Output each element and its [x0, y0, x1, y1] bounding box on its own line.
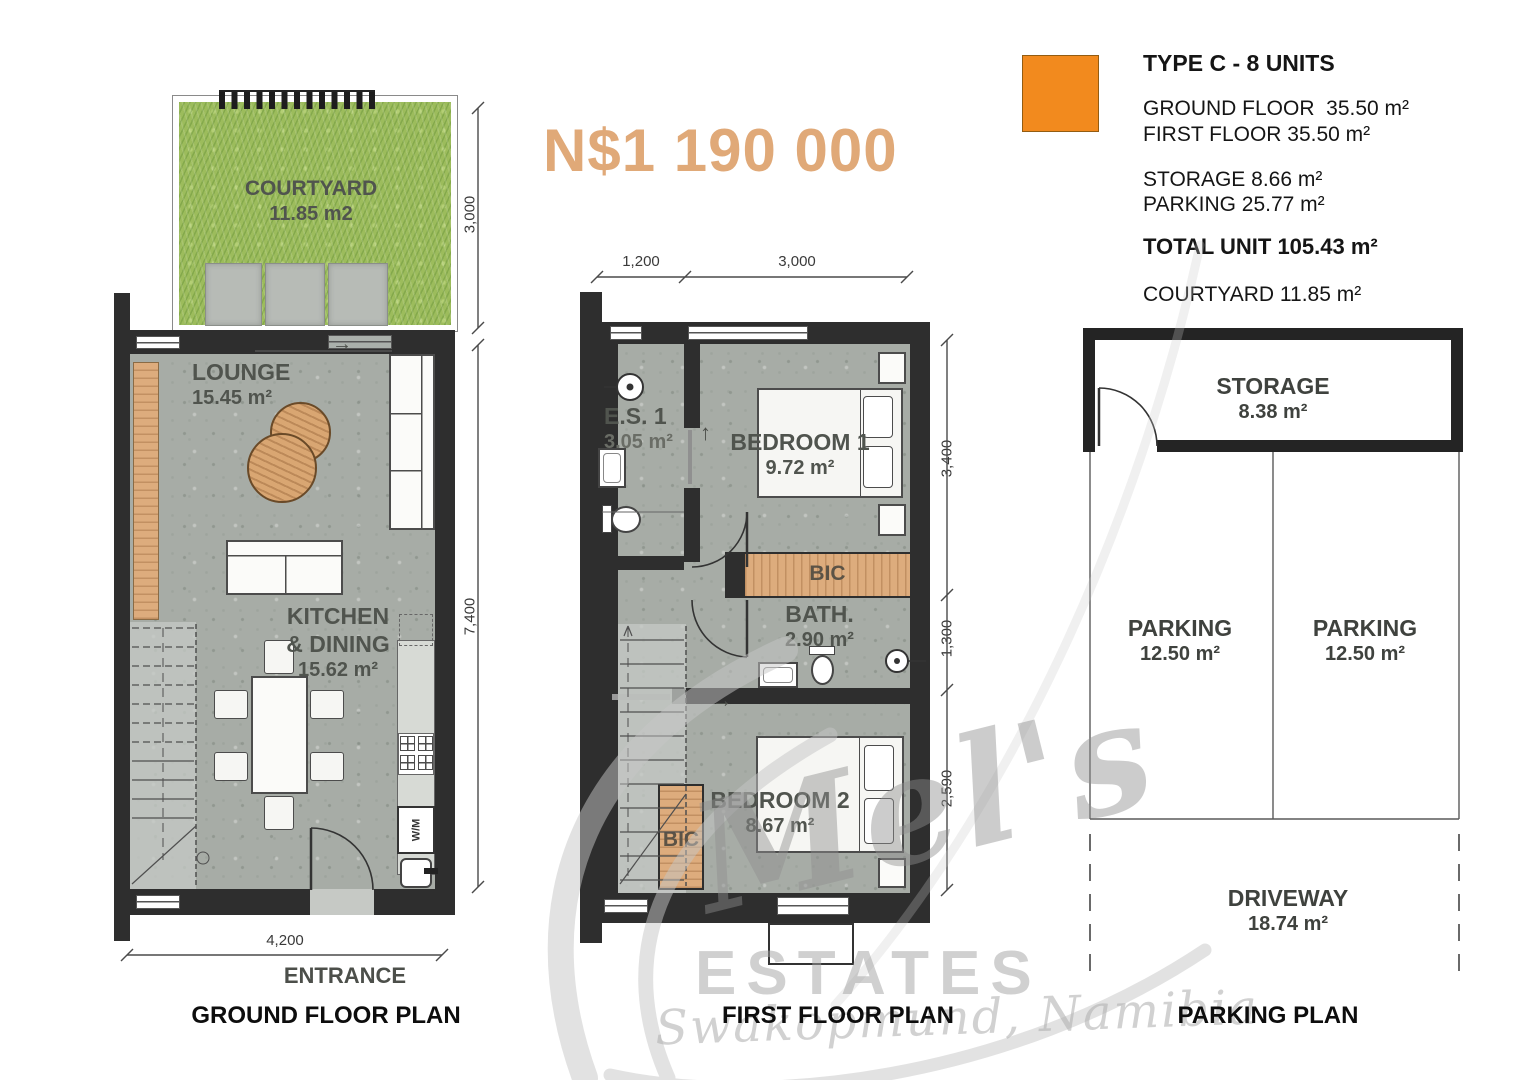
thin-lines [255, 351, 684, 512]
parking-bay-lines [1090, 452, 1459, 980]
plan-linework [0, 0, 1527, 1080]
ground-stairs-treads [132, 624, 209, 888]
ground-floor-title: GROUND FLOOR PLAN [166, 1002, 486, 1030]
first-floor-title: FIRST FLOOR PLAN [688, 1002, 988, 1030]
parking-plan-title: PARKING PLAN [1118, 1002, 1418, 1030]
door-arcs [311, 388, 1157, 890]
floor-plan-poster: COURTYARD 11.85 m2 W/M [0, 0, 1527, 1080]
first-stairs-treads [620, 626, 686, 886]
shower-icon [604, 374, 926, 672]
dimension-lines [121, 102, 953, 961]
